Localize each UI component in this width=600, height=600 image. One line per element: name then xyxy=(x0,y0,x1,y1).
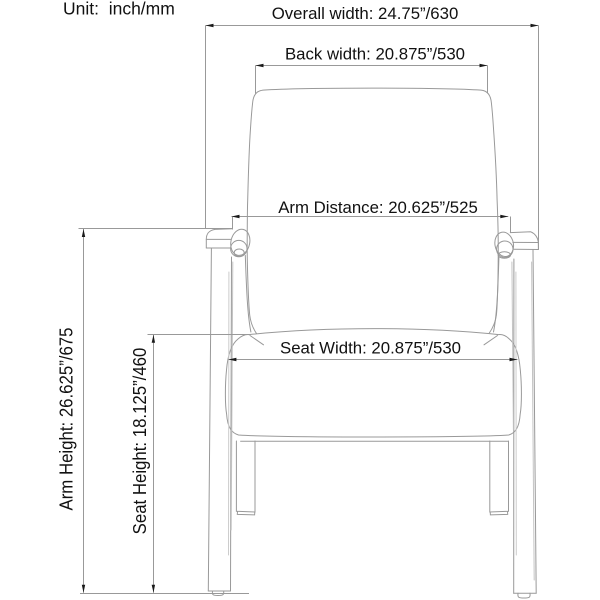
svg-text:Seat Height: 18.125”/460: Seat Height: 18.125”/460 xyxy=(129,348,150,535)
svg-text:Arm Distance: 20.625”/525: Arm Distance: 20.625”/525 xyxy=(278,198,478,217)
svg-text:Seat Width: 20.875”/530: Seat Width: 20.875”/530 xyxy=(280,339,461,358)
svg-text:Overall width: 24.75”/630: Overall width: 24.75”/630 xyxy=(272,4,459,23)
svg-text:Unit: inch/mm: Unit: inch/mm xyxy=(63,0,175,19)
svg-text:Back width: 20.875”/530: Back width: 20.875”/530 xyxy=(285,45,465,64)
svg-text:Arm Height: 26.625”/675: Arm Height: 26.625”/675 xyxy=(56,327,77,510)
